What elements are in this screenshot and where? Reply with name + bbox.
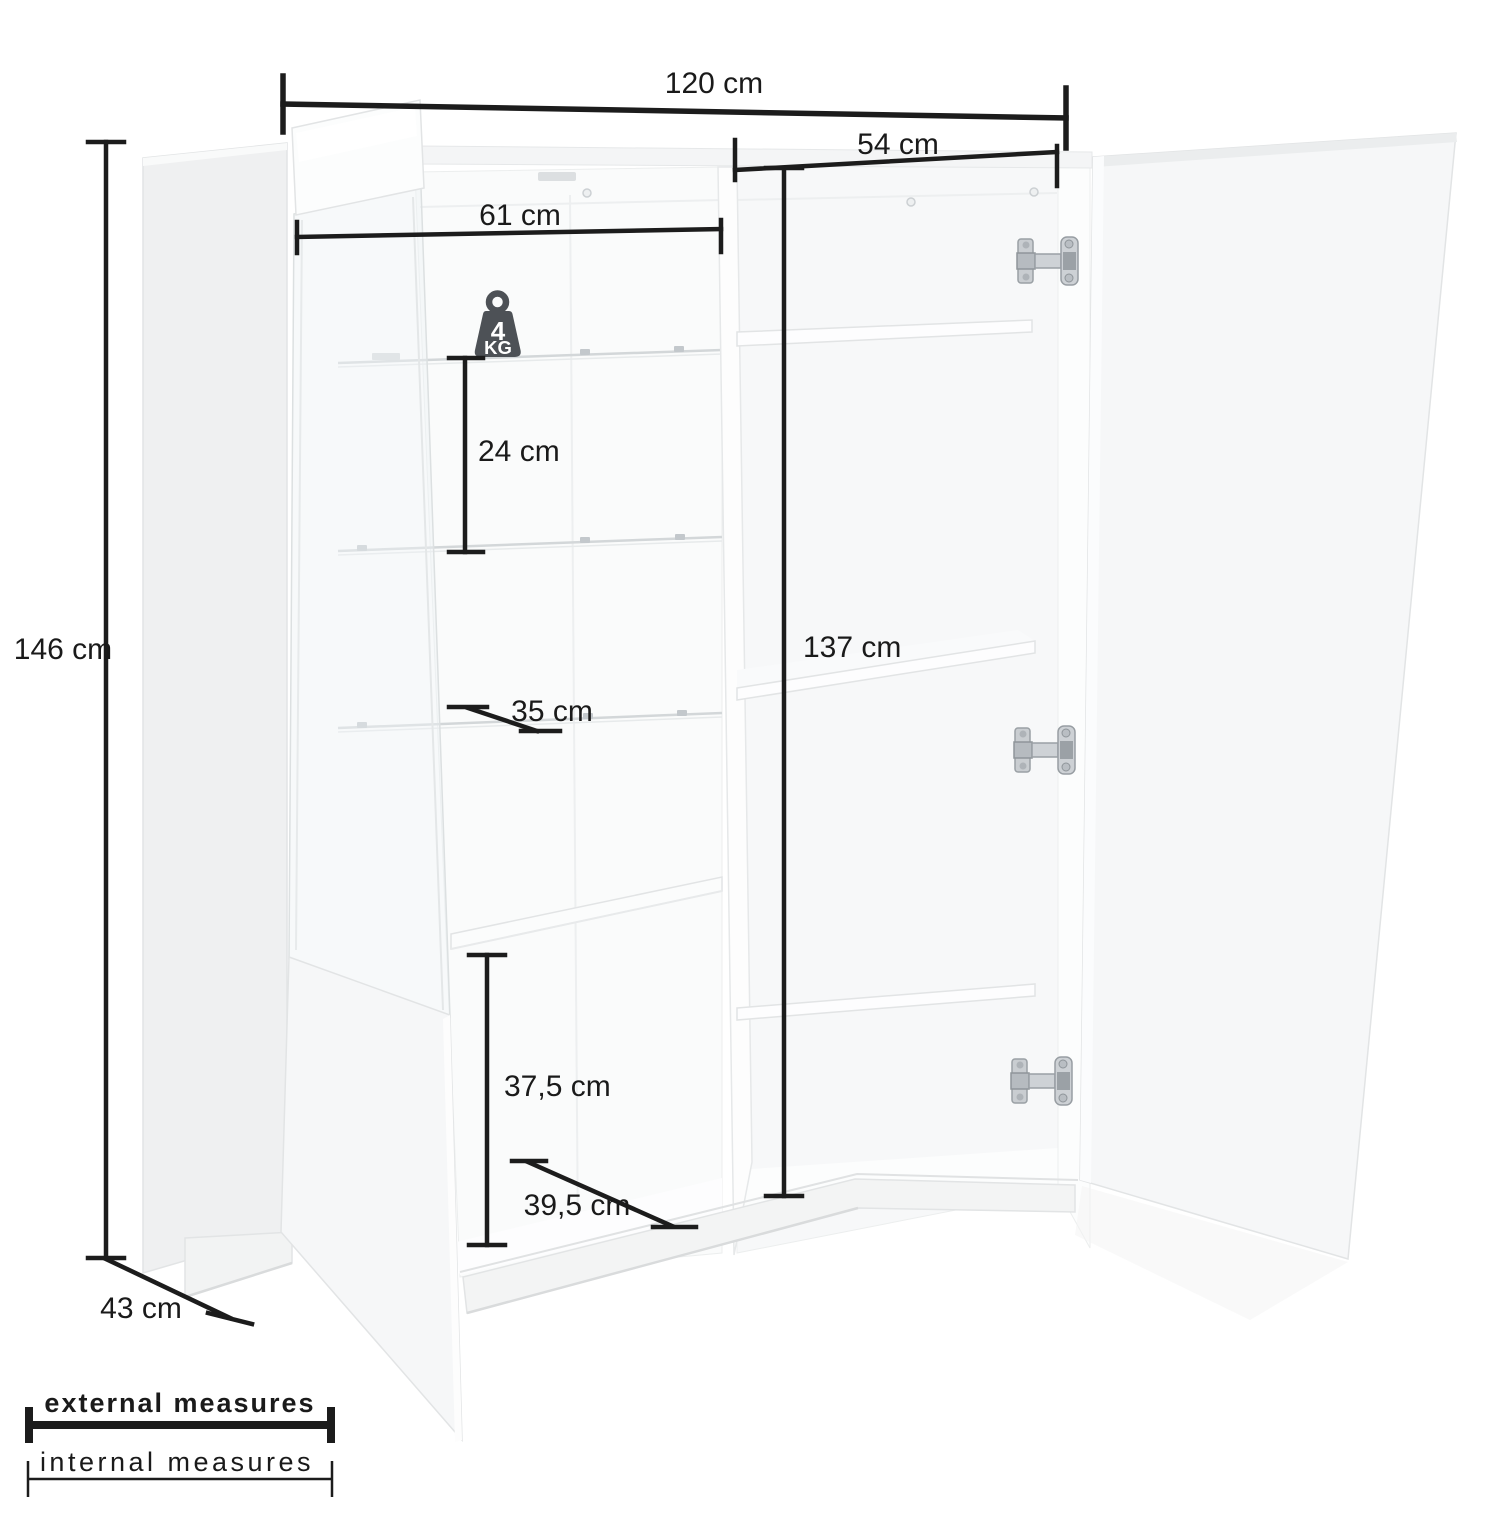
right-door-open	[1075, 133, 1457, 1320]
door-pivot-bracket	[538, 172, 576, 181]
dim-label-width: 120 cm	[665, 67, 763, 100]
left-side-panel	[143, 143, 287, 1273]
left-door-glass	[289, 188, 450, 1017]
dim-label-left-inner-width: 61 cm	[479, 199, 561, 232]
dim-label-bottom-inner-width: 39,5 cm	[524, 1189, 631, 1222]
dim-label-right-inner-height: 137 cm	[803, 631, 901, 664]
internal-measures-label: internal measures	[40, 1447, 314, 1477]
dim-label-shelf-depth: 35 cm	[511, 695, 593, 728]
diagram-canvas: 4 KG 120 cm 146 cm 43 cm	[0, 0, 1500, 1527]
dim-label-shelf-spacing: 24 cm	[478, 435, 560, 468]
furniture-dimension-diagram: 4 KG 120 cm 146 cm 43 cm	[0, 0, 1500, 1527]
left-door-bottom-panel	[281, 957, 462, 1442]
legend: external measures internal measures	[27, 1388, 333, 1497]
legend-external: external measures	[27, 1388, 333, 1443]
dim-label-height: 146 cm	[14, 633, 112, 666]
external-measures-label: external measures	[44, 1388, 315, 1418]
dim-label-right-inner-width: 54 cm	[857, 128, 939, 161]
weight-unit: KG	[484, 337, 512, 358]
dimension-height-external: 146 cm	[14, 142, 124, 1258]
dim-label-bottom-inner-height: 37,5 cm	[504, 1070, 611, 1103]
legend-internal: internal measures	[27, 1447, 333, 1497]
cabinet-illustration: 4 KG	[143, 100, 1457, 1442]
left-plinth	[185, 1232, 292, 1297]
dim-label-depth: 43 cm	[100, 1292, 182, 1325]
